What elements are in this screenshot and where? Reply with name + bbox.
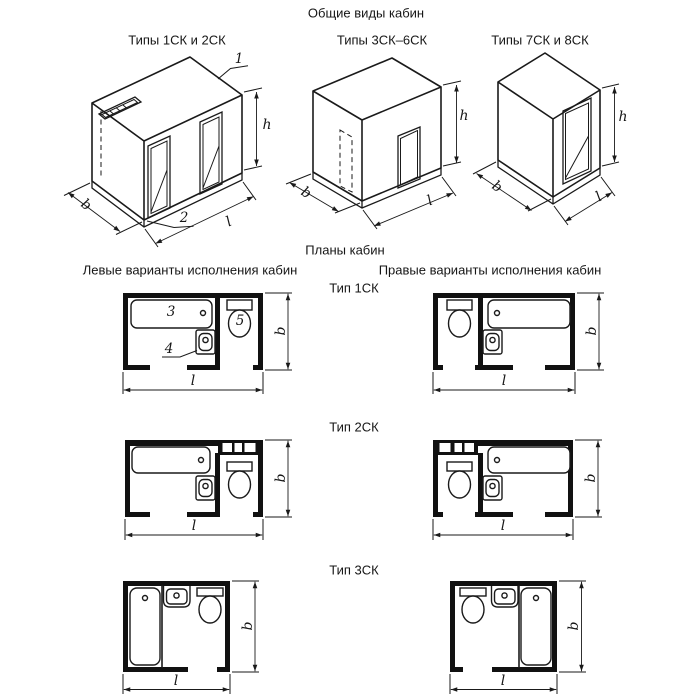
callout-2-base: 2 [180,210,189,226]
bathtub-drain [495,311,500,316]
bathtub-drain [199,458,204,463]
plan-type-3-label: Тип 3СК [329,563,378,578]
plan-type-2sk-right [433,440,602,540]
bathtub-drain [495,458,500,463]
callout-5-toilet: 5 [236,313,245,329]
plan-type-3sk-right [450,581,586,694]
toilet [447,462,472,498]
dim-b-label: b [584,327,600,336]
dim-b-label: b [273,327,289,336]
callout-3-bathtub: 3 [167,304,176,320]
washbasin [196,330,215,354]
technical-drawing [0,0,700,700]
plan-type-2-label: Тип 2СК [329,420,378,435]
toilet [460,588,486,623]
cabin-box [313,58,441,201]
iso-view-types-3sk-6sk [286,58,461,229]
washbasin [196,476,215,500]
dim-h-label: h [262,117,271,133]
dimension-h [244,88,262,170]
view-group-2-label: Типы 3СК–6СК [337,33,427,48]
right-variants-header: Правые варианты исполнения кабин [379,263,602,278]
toilet [227,462,252,498]
bathtub [488,447,570,473]
dim-l-label: l [192,518,196,534]
dim-l-label: l [501,673,505,689]
dim-b-label: b [240,622,256,631]
plan-type-2sk-left [125,440,292,540]
cabin-box [498,53,600,197]
dim-b-label: b [583,474,599,483]
dim-l-label: l [501,518,505,534]
bathtub-drain [534,596,539,601]
bathtub-drain [201,311,206,316]
plan-type-1-label: Тип 1СК [329,281,378,296]
toilet [197,588,223,623]
vent-block [433,440,478,455]
view-group-3-label: Типы 7СК и 8СК [491,33,589,48]
plans-title: Планы кабин [305,243,384,258]
washbasin [164,586,191,607]
callout-4-washbasin: 4 [165,341,174,357]
dim-b-label: b [273,474,289,483]
bathtub [488,300,570,328]
dim-l-label: l [502,373,506,389]
general-views-title: Общие виды кабин [308,6,424,21]
washbasin [492,586,519,607]
washbasin [483,330,502,354]
dim-h-label: h [618,109,627,125]
plan-type-3sk-left [123,581,259,694]
toilet [447,300,472,337]
plan-type-1sk-left [123,293,292,394]
dim-l-label: l [191,373,195,389]
dim-l-label: l [174,673,178,689]
drawing-page: Общие виды кабин Типы 1СК и 2СК Типы 3СК… [0,0,700,700]
bathtub-drain [143,596,148,601]
dimension-h [602,84,619,166]
vent-block [218,440,263,455]
washbasin [483,476,502,500]
left-variants-header: Левые варианты исполнения кабин [83,263,298,278]
dim-b-label: b [566,622,582,631]
view-group-1-label: Типы 1СК и 2СК [128,33,226,48]
dimension-h [443,81,461,166]
dim-h-label: h [459,108,468,124]
callout-1-ceiling: 1 [235,51,244,67]
plan-type-1sk-right [433,293,604,394]
iso-view-types-1sk-2sk [64,57,262,247]
